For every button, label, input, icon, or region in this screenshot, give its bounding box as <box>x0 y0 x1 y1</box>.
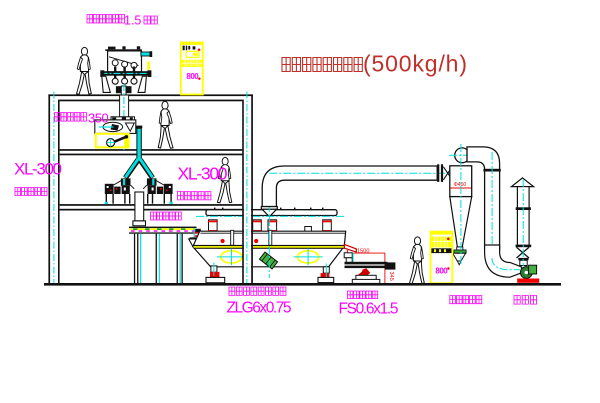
svg-text:XL-300: XL-300 <box>14 160 62 179</box>
svg-text:1500: 1500 <box>357 248 369 254</box>
svg-text:345: 345 <box>388 272 394 281</box>
svg-text:350: 350 <box>88 111 108 126</box>
svg-text:800: 800 <box>186 72 199 81</box>
svg-text:800: 800 <box>435 267 448 276</box>
svg-text:(500kg/h): (500kg/h) <box>363 51 467 77</box>
svg-text:1.5: 1.5 <box>124 14 141 28</box>
svg-text:XL-300: XL-300 <box>178 164 228 184</box>
svg-text:ZLG6x0.75: ZLG6x0.75 <box>227 300 292 317</box>
svg-text:Φ450: Φ450 <box>454 182 467 188</box>
svg-text:FS0.6x1.5: FS0.6x1.5 <box>339 301 399 318</box>
